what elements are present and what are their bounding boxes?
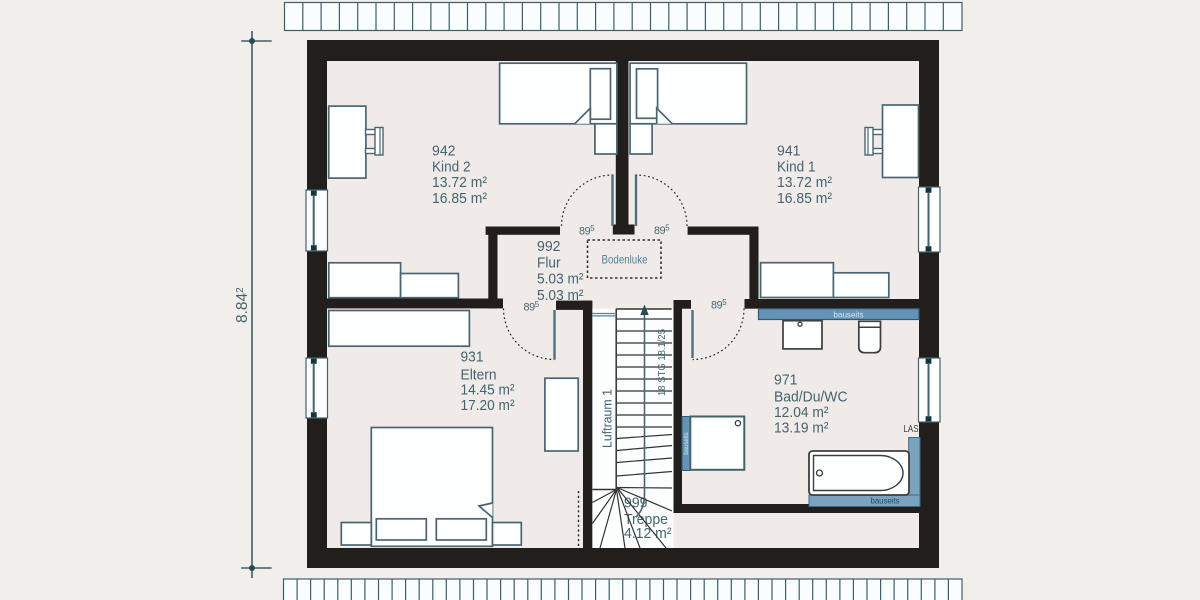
svg-text:14.45 m²: 14.45 m²	[461, 382, 515, 399]
svg-text:971: 971	[774, 372, 798, 389]
svg-text:16.85 m²: 16.85 m²	[777, 190, 832, 207]
svg-text:13.72 m²: 13.72 m²	[432, 174, 487, 191]
svg-text:5.03 m²: 5.03 m²	[537, 287, 584, 304]
svg-text:Bad/Du/WC: Bad/Du/WC	[774, 389, 848, 406]
svg-text:13.72 m²: 13.72 m²	[777, 174, 832, 191]
svg-text:13.19 m²: 13.19 m²	[774, 420, 829, 437]
svg-text:Kind 2: Kind 2	[432, 159, 471, 176]
svg-text:992: 992	[537, 238, 561, 255]
svg-text:Flur: Flur	[537, 255, 561, 272]
svg-text:4.12 m²: 4.12 m²	[624, 525, 672, 542]
svg-text:Kind 1: Kind 1	[777, 159, 816, 176]
svg-text:Bodenluke: Bodenluke	[602, 253, 648, 267]
svg-text:941: 941	[777, 143, 801, 160]
svg-text:bauseits: bauseits	[871, 497, 900, 506]
svg-text:942: 942	[432, 143, 456, 160]
svg-text:12.04 m²: 12.04 m²	[774, 404, 829, 421]
svg-text:18 STG 18.1/25: 18 STG 18.1/25	[656, 329, 668, 396]
svg-text:Luftraum 1: Luftraum 1	[600, 389, 615, 448]
svg-text:931: 931	[461, 349, 484, 366]
svg-text:LAS: LAS	[904, 424, 919, 435]
svg-text:17.20 m²: 17.20 m²	[461, 397, 515, 414]
svg-text:16.85 m²: 16.85 m²	[432, 190, 487, 207]
svg-text:bauseits: bauseits	[834, 310, 864, 320]
svg-text:5.03 m²: 5.03 m²	[537, 271, 584, 288]
